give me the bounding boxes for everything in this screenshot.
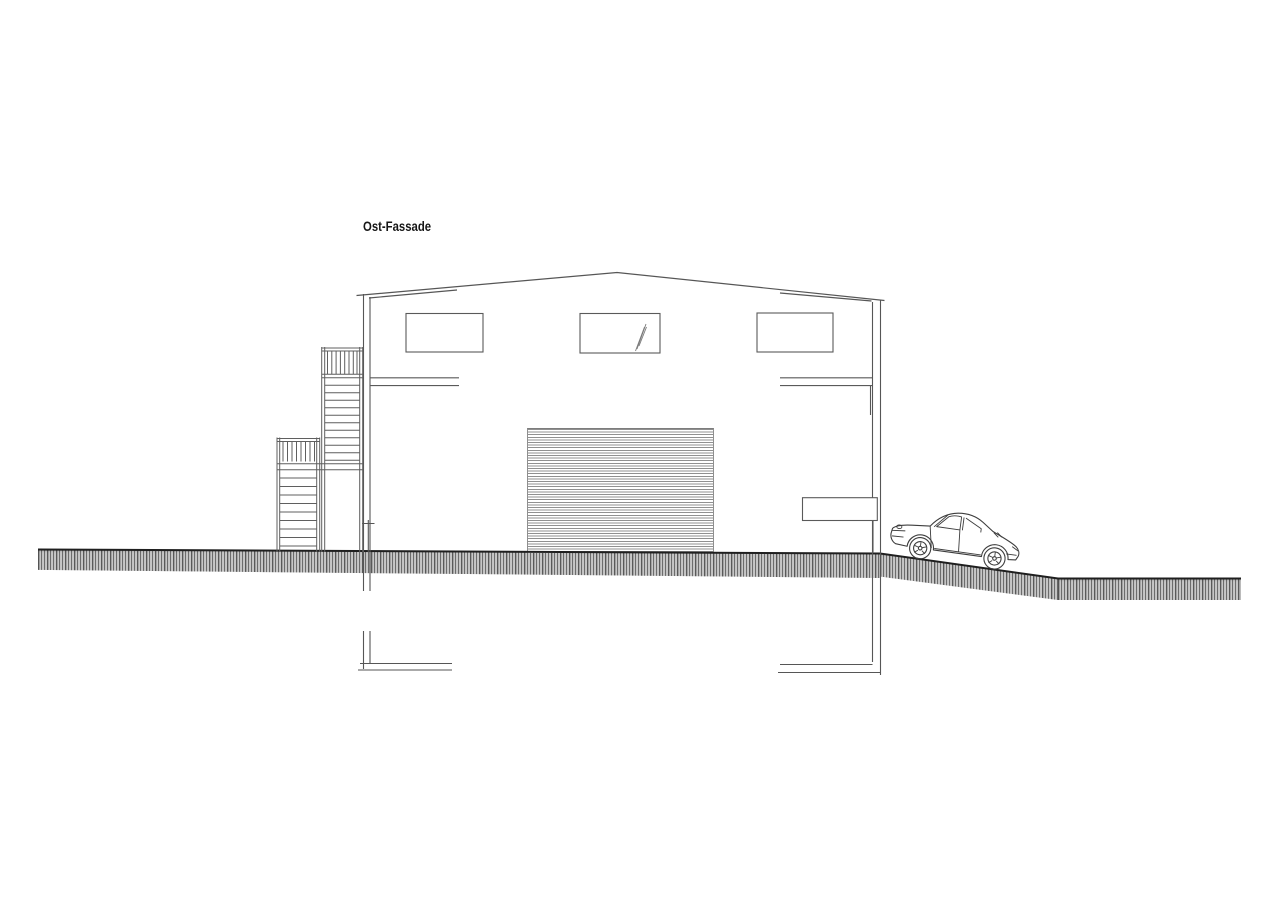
window-middle [580, 314, 660, 354]
garage-door [527, 428, 714, 553]
railing-balusters-upper [328, 352, 358, 375]
car-front-wheel [908, 536, 932, 560]
stair-treads-upper [325, 385, 360, 460]
foundation-left [358, 664, 452, 671]
railing-balusters-lower [283, 442, 315, 462]
stair-treads-lower [280, 478, 317, 546]
glazing-mark-icon [636, 324, 647, 351]
stair-upper [277, 347, 363, 552]
car-detail-lines [890, 519, 1020, 560]
ground-hatch-slope [880, 553, 1058, 600]
roof [357, 273, 885, 302]
foundation-right [778, 665, 881, 673]
ground-hatch-left [38, 549, 880, 578]
stair-lower [277, 438, 320, 553]
window-right [757, 313, 833, 352]
car-glass-lines [934, 513, 982, 533]
elevation-sheet: Ost-Fassade [0, 0, 1280, 905]
floor-lines [370, 378, 872, 386]
wall-niche-right [803, 498, 878, 553]
window-left [406, 314, 483, 353]
car-rear-wheel [983, 547, 1007, 571]
ground-hatch-right [1058, 578, 1241, 600]
upper-windows [406, 313, 833, 353]
car-body-outline [890, 504, 1024, 561]
drawing-title: Ost-Fassade [363, 219, 431, 234]
